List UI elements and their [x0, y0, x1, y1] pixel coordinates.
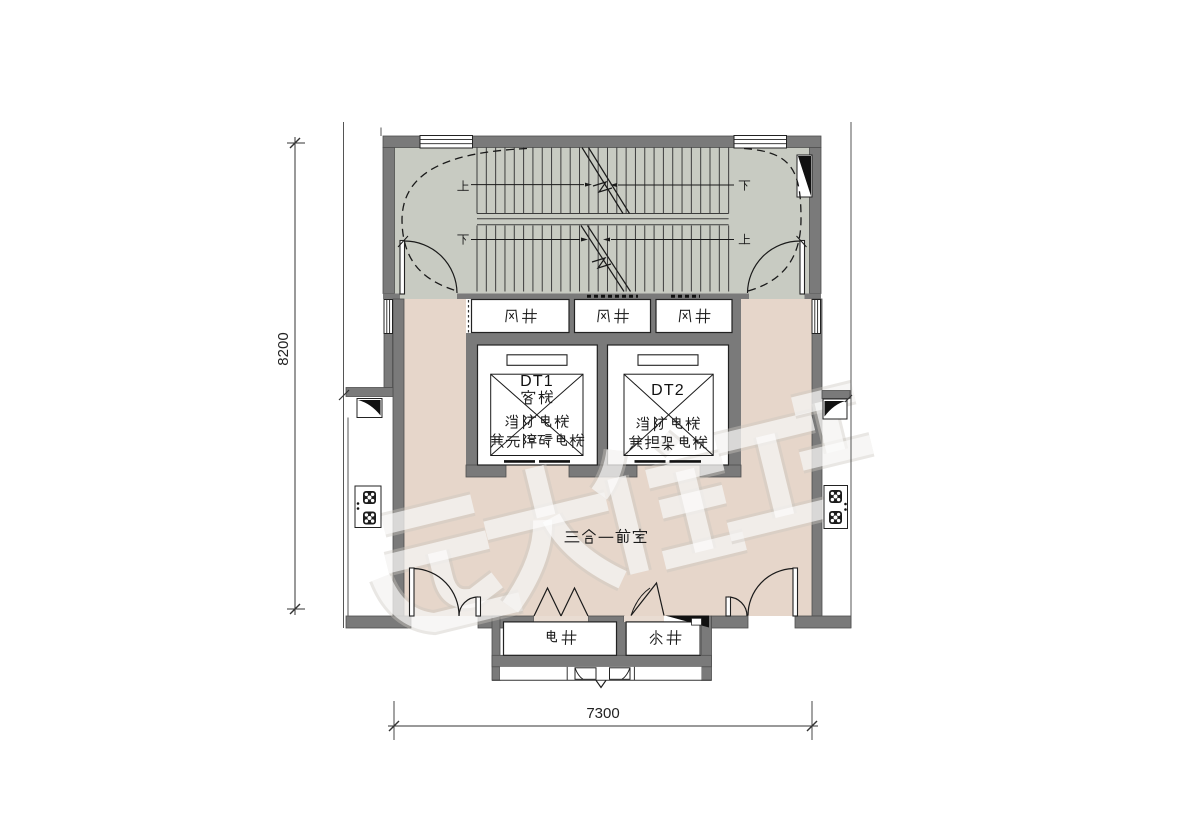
svg-text:7300: 7300	[586, 705, 619, 722]
svg-text:DT2: DT2	[651, 382, 685, 399]
svg-text:8200: 8200	[275, 332, 292, 365]
svg-text:DT1: DT1	[520, 373, 554, 390]
